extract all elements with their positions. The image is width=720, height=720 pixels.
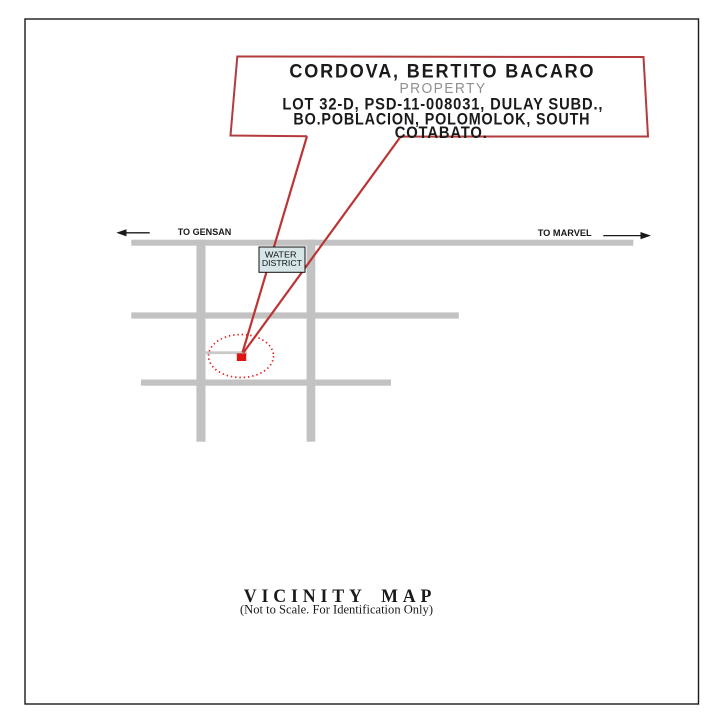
- svg-text:DISTRICT: DISTRICT: [262, 259, 302, 268]
- svg-text:COTABATO.: COTABATO.: [395, 123, 488, 142]
- svg-text:TO GENSAN: TO GENSAN: [178, 227, 232, 238]
- svg-text:TO MARVEL: TO MARVEL: [538, 228, 592, 239]
- svg-text:(Not to Scale. For Identificat: (Not to Scale. For Identification Only): [240, 603, 433, 617]
